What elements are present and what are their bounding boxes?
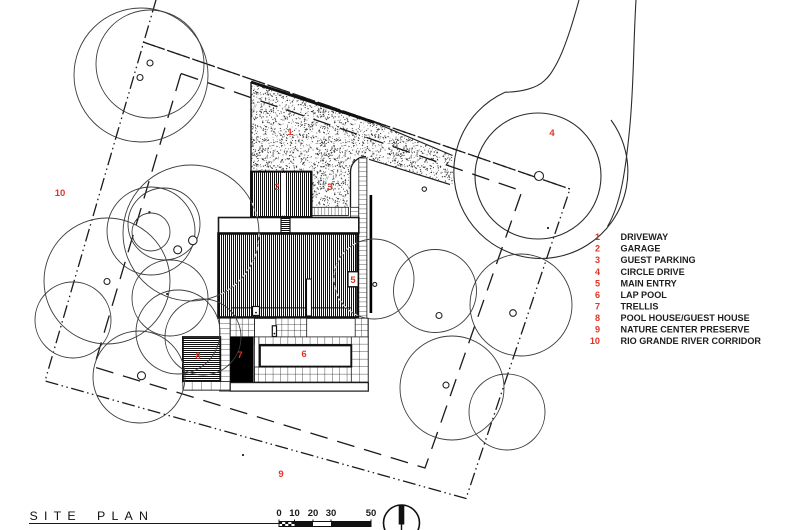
svg-text:4: 4 bbox=[549, 128, 555, 139]
svg-text:10: 10 bbox=[590, 336, 600, 346]
svg-text:GUEST PARKING: GUEST PARKING bbox=[621, 255, 696, 265]
svg-text:6: 6 bbox=[595, 290, 600, 300]
svg-text:SITE PLAN: SITE PLAN bbox=[30, 509, 155, 523]
svg-text:TRELLIS: TRELLIS bbox=[621, 302, 659, 312]
svg-text:30: 30 bbox=[326, 508, 337, 519]
svg-text:8: 8 bbox=[595, 313, 600, 323]
svg-text:2: 2 bbox=[274, 182, 279, 193]
svg-text:GARAGE: GARAGE bbox=[621, 244, 661, 254]
svg-text:7: 7 bbox=[237, 350, 242, 361]
svg-text:POOL HOUSE/GUEST HOUSE: POOL HOUSE/GUEST HOUSE bbox=[621, 313, 750, 323]
svg-text:50: 50 bbox=[366, 508, 377, 519]
svg-text:3: 3 bbox=[595, 255, 600, 265]
svg-text:9: 9 bbox=[278, 469, 283, 480]
svg-text:CIRCLE DRIVE: CIRCLE DRIVE bbox=[621, 267, 685, 277]
svg-text:LAP POOL: LAP POOL bbox=[621, 290, 668, 300]
svg-text:2: 2 bbox=[595, 244, 600, 254]
svg-text:10: 10 bbox=[289, 508, 300, 519]
svg-text:5: 5 bbox=[595, 278, 600, 288]
svg-text:20: 20 bbox=[308, 508, 319, 519]
svg-text:5: 5 bbox=[350, 275, 356, 286]
svg-text:10: 10 bbox=[55, 188, 66, 199]
svg-text:9: 9 bbox=[595, 325, 600, 335]
svg-text:NATURE CENTER PRESERVE: NATURE CENTER PRESERVE bbox=[621, 325, 750, 335]
svg-text:7: 7 bbox=[595, 302, 600, 312]
svg-text:1: 1 bbox=[595, 232, 600, 242]
svg-text:DRIVEWAY: DRIVEWAY bbox=[621, 232, 669, 242]
svg-text:RIO GRANDE RIVER CORRIDOR: RIO GRANDE RIVER CORRIDOR bbox=[621, 336, 762, 346]
svg-text:1: 1 bbox=[287, 127, 293, 138]
svg-text:0: 0 bbox=[276, 508, 281, 519]
svg-text:8: 8 bbox=[195, 351, 200, 362]
svg-text:MAIN ENTRY: MAIN ENTRY bbox=[621, 278, 677, 288]
svg-text:6: 6 bbox=[301, 349, 306, 360]
svg-text:4: 4 bbox=[595, 267, 601, 277]
svg-text:3: 3 bbox=[327, 182, 332, 193]
